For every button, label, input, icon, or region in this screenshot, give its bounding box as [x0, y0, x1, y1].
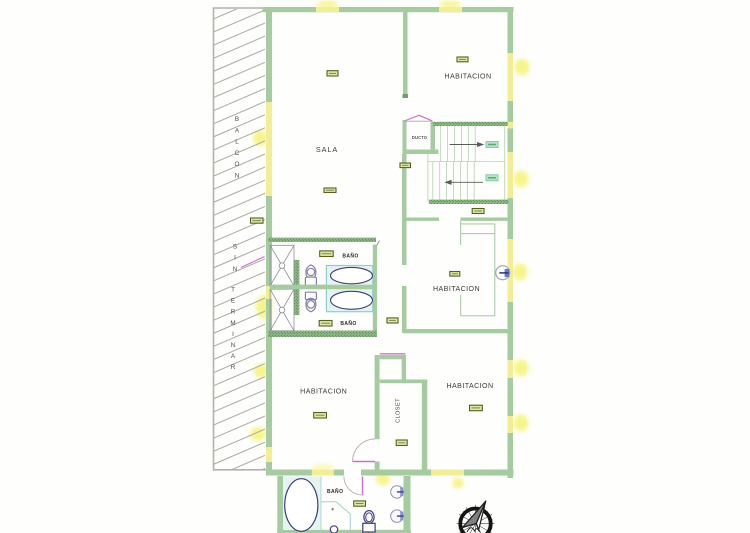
- svg-text:L: L: [235, 139, 239, 146]
- svg-text:N: N: [233, 266, 238, 273]
- svg-text:HABITACION: HABITACION: [433, 285, 480, 293]
- svg-text:DUCTO: DUCTO: [412, 135, 428, 140]
- svg-text:N: N: [235, 173, 240, 180]
- svg-text:R: R: [231, 364, 236, 371]
- svg-text:HABITACION: HABITACION: [300, 387, 347, 395]
- svg-text:HABITACION: HABITACION: [446, 382, 493, 390]
- svg-text:C: C: [235, 150, 240, 157]
- svg-text:I: I: [232, 331, 234, 338]
- svg-text:BAÑO: BAÑO: [340, 320, 356, 327]
- svg-text:E: E: [231, 298, 235, 305]
- svg-text:BAÑO: BAÑO: [327, 488, 343, 495]
- svg-text:N: N: [231, 342, 236, 349]
- svg-text:BAÑO: BAÑO: [342, 253, 358, 260]
- svg-text:I: I: [234, 255, 236, 262]
- svg-text:HABITACION: HABITACION: [444, 73, 491, 81]
- svg-text:S: S: [233, 244, 237, 251]
- svg-text:M: M: [230, 320, 235, 327]
- svg-text:CLOSET: CLOSET: [396, 398, 402, 423]
- svg-text:SALA: SALA: [316, 145, 338, 154]
- svg-text:R: R: [231, 309, 236, 316]
- svg-text:T: T: [231, 287, 235, 294]
- svg-text:B: B: [235, 116, 239, 123]
- svg-text:O: O: [235, 161, 240, 168]
